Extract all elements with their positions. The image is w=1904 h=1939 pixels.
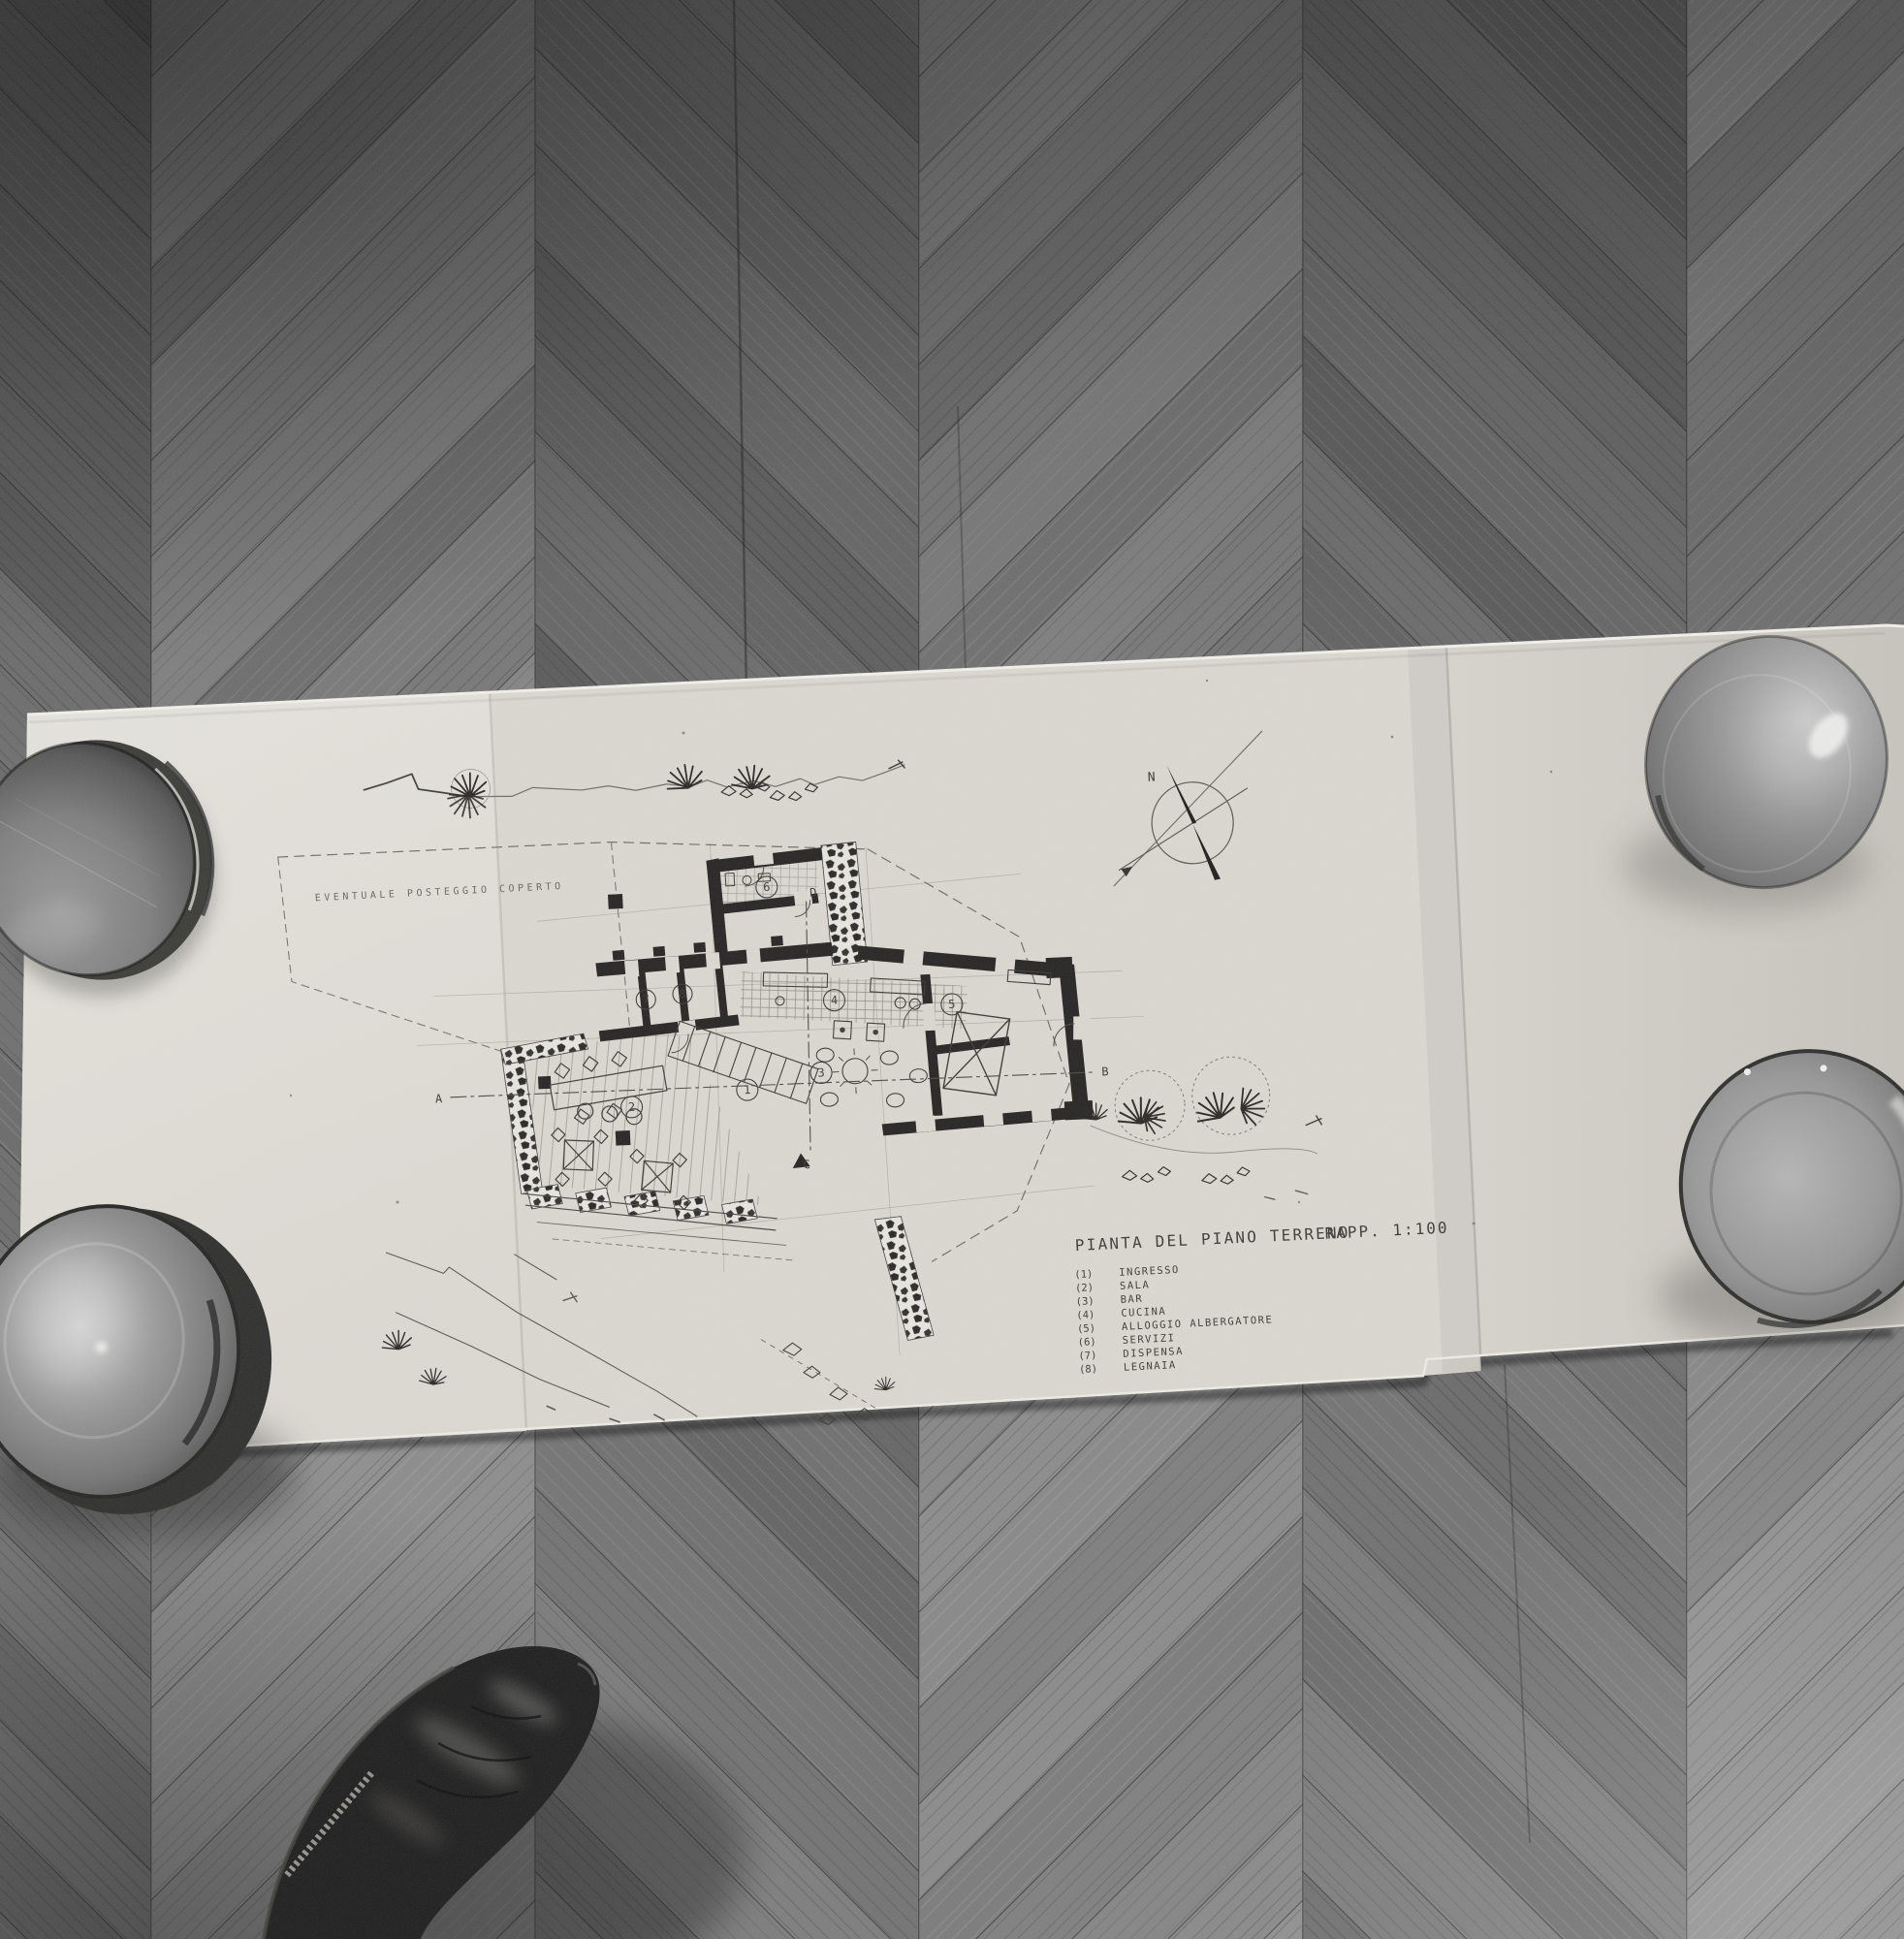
photo-grain (0, 0, 1904, 1939)
photo-scene: N EVENTUALE POSTEGGIO COPERTO (0, 0, 1904, 1939)
